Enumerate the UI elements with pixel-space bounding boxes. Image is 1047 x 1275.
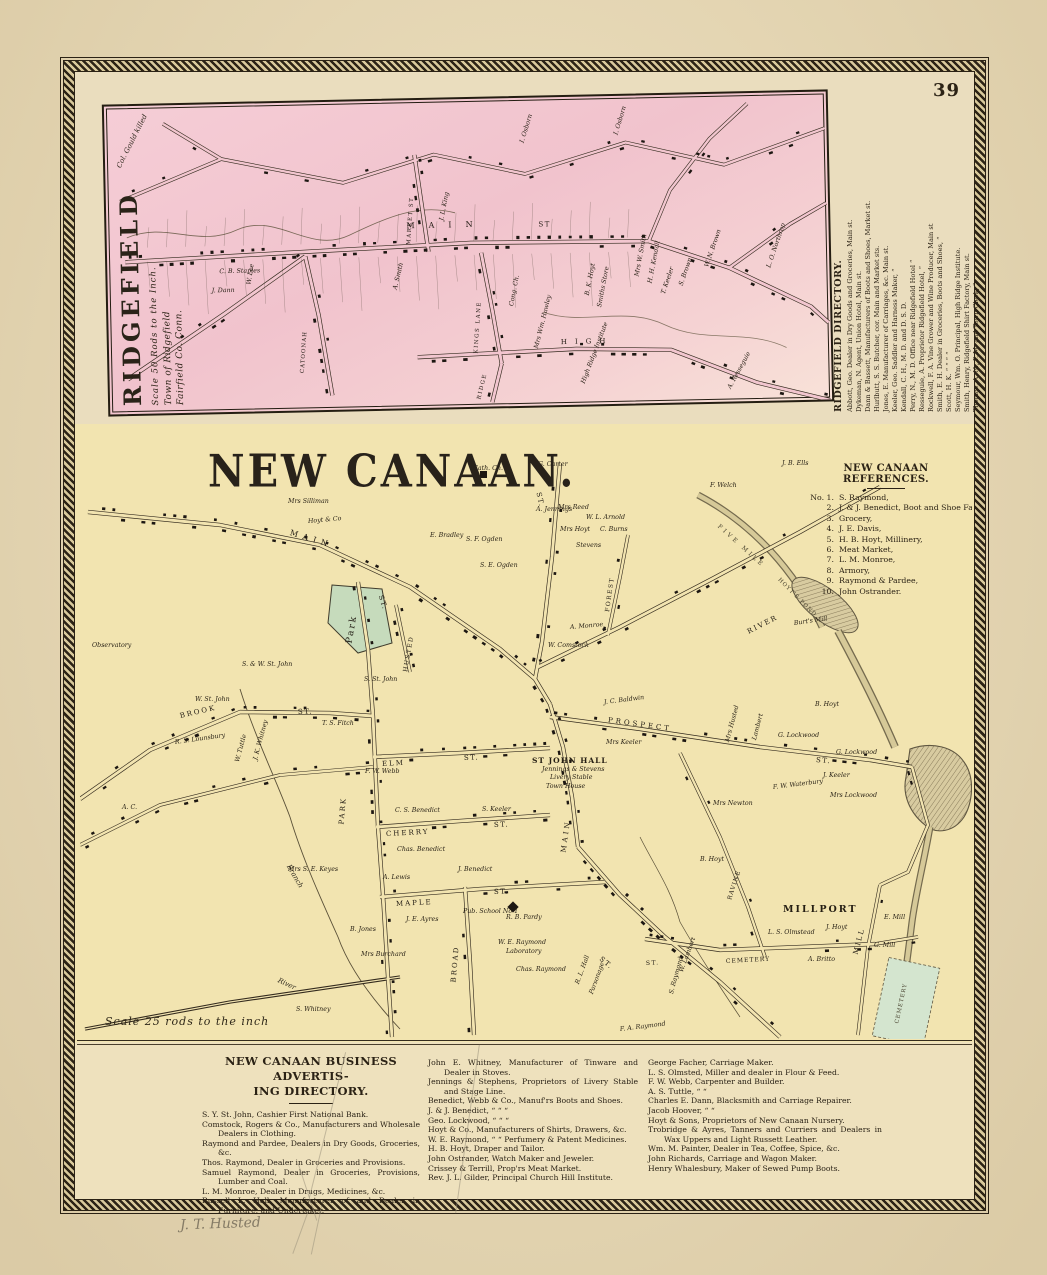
place-label: B. Jones bbox=[350, 927, 376, 933]
place-label: T. Keeler bbox=[661, 267, 676, 296]
reference-number: 6. bbox=[800, 545, 839, 555]
reference-name: H. B. Hoyt, Millinery, bbox=[839, 535, 923, 544]
business-directory-entry: John Ostrander, Watch Maker and Jeweler. bbox=[428, 1154, 638, 1164]
place-label: E. Mill bbox=[884, 915, 905, 921]
ridgefield-directory-entry: Jones, E. Manufacturer of Carriages, &c.… bbox=[882, 128, 891, 412]
place-label: G. Lockwood bbox=[836, 750, 877, 756]
ridgefield-title-block: RIDGEFIELD Scale 50 Rods to the Inch. To… bbox=[111, 162, 228, 406]
ridgefield-directory-entry: Thomas, A. N., P. M. and Town Clerk, “ bbox=[972, 128, 981, 412]
business-directory-entry: H. B. Hoyt, Draper and Tailor. bbox=[428, 1144, 638, 1154]
place-label: L. O. Northrop bbox=[766, 223, 787, 269]
place-label: R. S. Lounsbury bbox=[175, 733, 226, 746]
references-title: NEW CANAAN REFERENCES. bbox=[800, 463, 972, 485]
landmark-label: MILLPORT bbox=[783, 905, 858, 915]
place-label: F. A. Raymond bbox=[620, 1021, 666, 1033]
reference-name: J. & J. Benedict, Boot and Shoe Factory. bbox=[839, 503, 972, 512]
ridgefield-directory-entry: Resseguie, A. Proprietor Ridgefield Hote… bbox=[918, 128, 927, 412]
new-canaan-scale-note: Scale 25 rods to the inch bbox=[105, 1015, 269, 1028]
new-canaan-references: NEW CANAAN REFERENCES. No. 1.S. Raymond,… bbox=[800, 463, 972, 597]
place-label: Cong. Ch. bbox=[509, 275, 521, 307]
reference-name: Grocery, bbox=[839, 514, 872, 523]
business-directory-entry: Jennings & Stephens, Proprietors of Live… bbox=[428, 1077, 638, 1096]
place-label: W. E. Raymond bbox=[498, 940, 546, 946]
place-label: Mrs W. Smith bbox=[634, 234, 648, 277]
atlas-sheet: 39 MAINSTMARKET STCATOONAHKINGS LANEHIGH… bbox=[0, 0, 1047, 1275]
reference-name: J. E. Davis, bbox=[839, 524, 881, 533]
street-label: HUSTED bbox=[403, 635, 415, 672]
place-label: B. Hoyt bbox=[700, 857, 724, 863]
place-label: C. B. Staples bbox=[219, 268, 260, 275]
street-label: ST. bbox=[494, 821, 509, 829]
references-rule bbox=[867, 488, 905, 489]
business-directory-entry: Geo. Lockwood, “ “ “ bbox=[428, 1116, 638, 1126]
business-directory-entry: Trobridge & Ayres, Tanners and Curriers … bbox=[648, 1125, 882, 1144]
place-label: Parsonage bbox=[589, 962, 606, 995]
place-label: C. S. Benedict bbox=[395, 808, 440, 814]
place-label: A. Smith bbox=[393, 262, 406, 290]
business-directory-entry: Samuel Raymond, Dealer in Groceries, Pro… bbox=[202, 1168, 420, 1187]
place-label: A. C. bbox=[122, 805, 137, 811]
place-label: River bbox=[277, 977, 297, 991]
place-label: F. W. Waterbury bbox=[773, 779, 824, 791]
business-directory-entry: L. S. Olmsted, Miller and dealer in Flou… bbox=[648, 1068, 882, 1078]
place-label: W. L. Arnold bbox=[586, 515, 625, 521]
place-label: S. E. Ogden bbox=[480, 563, 518, 569]
place-label: T. S. Fitch bbox=[322, 721, 354, 727]
reference-entry: 2.J. & J. Benedict, Boot and Shoe Factor… bbox=[800, 503, 972, 513]
place-label: S. F. Ogden bbox=[466, 537, 503, 543]
street-label: MAIN bbox=[561, 819, 573, 853]
street-label: RIDGE bbox=[477, 373, 489, 400]
place-label: Hoyt & Co bbox=[308, 516, 342, 525]
business-directory-title-line1: NEW CANAAN BUSINESS ADVERTIS- bbox=[202, 1054, 420, 1084]
place-label: High Ridge Institute bbox=[581, 322, 610, 385]
street-label: RAVINE bbox=[727, 870, 742, 901]
street-label: ST. bbox=[377, 594, 388, 611]
references-list: No. 1.S. Raymond,2.J. & J. Benedict, Boo… bbox=[800, 493, 972, 597]
reference-entry: 7.L. M. Monroe, bbox=[800, 555, 972, 565]
place-label: Laboratory bbox=[506, 949, 541, 955]
place-label: J. Keeler bbox=[823, 773, 850, 779]
place-label: J. L. King bbox=[439, 192, 451, 222]
reference-number: 5. bbox=[800, 535, 839, 545]
place-label: Mrs Husted bbox=[725, 705, 741, 743]
business-directory-entry: S. Y. St. John, Cashier First National B… bbox=[202, 1110, 420, 1120]
street-label: MAPLE bbox=[396, 899, 433, 908]
place-label: G. Mill bbox=[874, 943, 895, 949]
business-directory-entry: A. S. Tuttle, “ “ bbox=[648, 1087, 882, 1097]
business-directory-entry: J. & J. Benedict, “ “ “ bbox=[428, 1106, 638, 1116]
reference-entry: 6.Meat Market, bbox=[800, 545, 972, 555]
place-label: S. & W. St. John bbox=[242, 662, 292, 668]
map-directory-divider-thin bbox=[77, 1044, 972, 1045]
place-label: F. W. Webb bbox=[365, 769, 400, 775]
place-label: W. Comstock bbox=[548, 643, 589, 649]
reference-entry: 3.Grocery, bbox=[800, 514, 972, 524]
business-directory-entry: Crissey & Terrill, Prop'rs Meat Market. bbox=[428, 1164, 638, 1174]
business-directory-entries-1: S. Y. St. John, Cashier First National B… bbox=[202, 1110, 420, 1216]
place-label: J. C. Baldwin bbox=[604, 695, 645, 706]
place-label: G. Lockwood bbox=[778, 733, 819, 739]
business-directory-title-line2: ING DIRECTORY. bbox=[202, 1084, 420, 1099]
street-label: ST. bbox=[298, 708, 313, 716]
place-label: W. Lambert bbox=[679, 937, 697, 974]
place-label: Mrs Keeler bbox=[606, 740, 641, 746]
street-label: FOREST bbox=[605, 577, 616, 613]
reference-name: Meat Market, bbox=[839, 545, 893, 554]
reference-number: 10. bbox=[800, 587, 839, 597]
reference-number: 4. bbox=[800, 524, 839, 534]
reference-name: L. M. Monroe, bbox=[839, 555, 895, 564]
place-label: E. Bradley bbox=[430, 533, 463, 539]
place-label: A. Resseguie bbox=[727, 351, 752, 390]
street-label: ST. bbox=[494, 888, 509, 896]
reference-number: No. 1. bbox=[800, 493, 839, 503]
reference-name: Raymond & Pardee, bbox=[839, 576, 918, 585]
place-label: A. Lewis bbox=[383, 875, 410, 881]
water-label: CEMETERY bbox=[895, 983, 909, 1024]
place-label: B. K. Hoyt bbox=[585, 263, 597, 296]
business-directory-entry: George Facher, Carriage Maker. bbox=[648, 1058, 882, 1068]
business-directory-column-3: George Facher, Carriage Maker.L. S. Olms… bbox=[648, 1058, 882, 1173]
place-label: I. Osborn bbox=[520, 114, 535, 144]
street-label: MILL bbox=[853, 927, 867, 955]
street-label: BROOK bbox=[179, 705, 217, 720]
place-label: W. St. John bbox=[195, 697, 230, 703]
business-directory-entry: Comstock, Rogers & Co., Manufacturers an… bbox=[202, 1120, 420, 1139]
ridgefield-directory: RIDGEFIELD DIRECTORY. Abbott, Geo. Deale… bbox=[832, 128, 986, 412]
place-label: H. H. Kendall bbox=[648, 240, 662, 284]
place-label: R. L. Hall bbox=[575, 955, 591, 986]
street-label: PROSPECT bbox=[608, 717, 673, 733]
place-label: F. Welch bbox=[710, 483, 737, 489]
street-label: ELM bbox=[382, 760, 405, 768]
reference-number: 9. bbox=[800, 576, 839, 586]
place-label: S. Keeler bbox=[482, 807, 511, 813]
street-label: BROAD bbox=[451, 946, 461, 983]
ridgefield-directory-entry: Smith, E. H. Dealer in Groceries, Boots … bbox=[936, 128, 945, 412]
street-label: CEMETERY bbox=[726, 957, 770, 965]
ridgefield-directory-entry: Rockwell, F. A. Vine Grower and Wine Pro… bbox=[927, 128, 936, 412]
business-directory-entry: Jacob Hoover, “ “ bbox=[648, 1106, 882, 1116]
place-label: Mrs Lockwood bbox=[830, 793, 877, 799]
business-directory-entry: Hoyt & Sons, Proprietors of New Canaan N… bbox=[648, 1116, 882, 1126]
reference-entry: 8.Armory, bbox=[800, 566, 972, 576]
reference-entry: 9.Raymond & Pardee, bbox=[800, 576, 972, 586]
pencil-stray-mark bbox=[292, 1211, 308, 1254]
ridgefield-directory-title: RIDGEFIELD DIRECTORY. bbox=[832, 128, 846, 412]
place-label: Smiths Store bbox=[597, 266, 611, 308]
street-label: HIGH bbox=[561, 338, 614, 346]
place-label: J. K. Whitney bbox=[253, 720, 270, 761]
business-directory-entry: John Richards, Carriage and Wagon Maker. bbox=[648, 1154, 882, 1164]
business-directory-entry: Wm. M. Painter, Dealer in Tea, Coffee, S… bbox=[648, 1144, 882, 1154]
reference-entry: 10.John Ostrander. bbox=[800, 587, 972, 597]
ridgefield-directory-entry: Perry, N., M. D. Office near Ridgefield … bbox=[909, 128, 918, 412]
place-label: S. Whitney bbox=[296, 1007, 331, 1013]
landmark-label: ST JOHN HALL bbox=[532, 757, 608, 765]
street-label: CHERRY bbox=[386, 829, 430, 838]
place-label: C. Burns bbox=[600, 527, 628, 533]
business-directory-entries-3: George Facher, Carriage Maker.L. S. Olms… bbox=[648, 1058, 882, 1173]
reference-entry: 4.J. E. Davis, bbox=[800, 524, 972, 534]
business-directory-entry: Raymond and Pardee, Dealers in Dry Goods… bbox=[202, 1139, 420, 1158]
page-content: 39 MAINSTMARKET STCATOONAHKINGS LANEHIGH… bbox=[74, 71, 975, 1200]
reference-name: S. Raymond, bbox=[839, 493, 889, 502]
place-label: Observatory bbox=[92, 643, 131, 649]
reference-name: Armory, bbox=[839, 566, 870, 575]
street-label: ST. bbox=[464, 754, 479, 762]
street-label: ST. bbox=[816, 757, 832, 765]
place-label: W. N. Brown bbox=[704, 229, 723, 268]
place-label: Mrs Hoyt bbox=[560, 527, 590, 533]
place-label: Livery Stable bbox=[550, 775, 592, 781]
ridgefield-directory-entry: Hurlbutt, S. S. Butcher, cor. Main and M… bbox=[873, 128, 882, 412]
business-directory-entry: W. E. Raymond, “ “ Perfumery & Patent Me… bbox=[428, 1135, 638, 1145]
place-label: Lambert bbox=[752, 713, 765, 741]
ridgefield-directory-entry: Seymour, Wm. O. Principal, High Ridge In… bbox=[954, 128, 963, 412]
new-canaan-map-area: NEW CANAAN. NEW CANAAN REFERENCES. No. 1… bbox=[80, 417, 972, 1039]
place-label: L. S. Olmstead bbox=[768, 930, 815, 936]
place-label: J. E. Ayres bbox=[406, 917, 438, 923]
reference-entry: 5.H. B. Hoyt, Millinery, bbox=[800, 535, 972, 545]
business-directory-entries-2: John E. Whitney, Manufacturer of Tinware… bbox=[428, 1058, 638, 1183]
business-directory-entry: Benedict, Webb & Co., Manuf'rs Boots and… bbox=[428, 1096, 638, 1106]
reference-number: 8. bbox=[800, 566, 839, 576]
street-label: ST. bbox=[646, 960, 660, 967]
ridgefield-directory-entry: Kendall, C. H., M. D. and D. S. D. bbox=[900, 128, 909, 412]
place-label: Mrs Silliman bbox=[288, 499, 329, 505]
business-directory-entry: F. W. Webb, Carpenter and Builder. bbox=[648, 1077, 882, 1087]
reference-number: 3. bbox=[800, 514, 839, 524]
place-label: B. Hoyt bbox=[815, 702, 839, 708]
business-directory-rule bbox=[289, 1103, 333, 1104]
ridgefield-directory-entry: Abbott, Geo. Dealer in Dry Goods and Gro… bbox=[846, 128, 855, 412]
street-label: ST bbox=[538, 221, 551, 228]
ridgefield-directory-entry: Dykeman, N. Agent, Union Hotel, Main st. bbox=[855, 128, 864, 412]
place-label: Mrs Newton bbox=[713, 801, 753, 807]
new-canaan-title: NEW CANAAN. bbox=[208, 445, 576, 498]
street-label: CATOONAH bbox=[301, 331, 309, 373]
street-label: PARK bbox=[339, 797, 348, 825]
place-label: Chas. Raymond bbox=[516, 967, 566, 973]
business-directory-entry: Charles E. Dann, Blacksmith and Carriage… bbox=[648, 1096, 882, 1106]
reference-number: 2. bbox=[800, 503, 839, 513]
place-label: W. Tuttle bbox=[235, 734, 248, 763]
place-label: J. Benedict bbox=[458, 867, 492, 873]
place-label: Stevens bbox=[576, 543, 601, 549]
place-label: Col. Gould killed bbox=[116, 113, 149, 169]
place-label: J. Hoyt bbox=[826, 925, 847, 931]
business-directory-entry: Thos. Raymond, Dealer in Groceries and P… bbox=[202, 1158, 420, 1168]
place-label: I. Osborn bbox=[614, 106, 629, 136]
decorative-border: 39 MAINSTMARKET STCATOONAHKINGS LANEHIGH… bbox=[60, 57, 989, 1214]
place-label: Town House bbox=[546, 784, 585, 790]
place-label: Jennings & Stevens bbox=[542, 767, 604, 773]
place-label: Chas. Benedict bbox=[397, 847, 445, 853]
water-label: FIVE MILE bbox=[716, 524, 765, 569]
ridgefield-title: RIDGEFIELD bbox=[111, 164, 150, 407]
place-label: S. Brown bbox=[679, 257, 694, 286]
business-directory-entry: Henry Whalesbury, Maker of Sewed Pump Bo… bbox=[648, 1164, 882, 1174]
pencil-annotation: J. T. Husted bbox=[180, 1215, 261, 1234]
place-label: A. Monroe bbox=[570, 622, 604, 631]
page-number: 39 bbox=[933, 80, 960, 101]
ridgefield-directory-entry: Scott, H. K. “ “ “ “ bbox=[945, 128, 954, 412]
reference-number: 7. bbox=[800, 555, 839, 565]
street-label: KINGS LANE bbox=[474, 301, 483, 354]
street-label: RIVER bbox=[746, 614, 779, 635]
street-label: Park bbox=[346, 614, 360, 644]
reference-entry: No. 1.S. Raymond, bbox=[800, 493, 972, 503]
business-directory-entry: John E. Whitney, Manufacturer of Tinware… bbox=[428, 1058, 638, 1077]
ridgefield-directory-entry: Smith, Henry, Ridgefield Shirt Factory, … bbox=[963, 128, 972, 412]
place-label: Mrs Wm. Hawley bbox=[534, 294, 553, 349]
place-label: S. St. John bbox=[364, 677, 397, 683]
place-label: Mrs Burchard bbox=[361, 952, 406, 958]
ridgefield-directory-entry: Dann & Bassett, Manufacturers of Boots a… bbox=[864, 128, 873, 412]
place-label: Mrs Reed bbox=[558, 505, 589, 511]
place-label: A. Britto bbox=[808, 957, 835, 963]
place-label: R. B. Pardy bbox=[506, 915, 542, 921]
street-label: MAIN bbox=[289, 529, 334, 550]
map-directory-divider bbox=[77, 1040, 972, 1041]
business-directory-entry: Hoyt & Co., Manufacturers of Shirts, Dra… bbox=[428, 1125, 638, 1135]
place-label: Burt's Mill bbox=[794, 616, 828, 627]
business-directory-column-2: John E. Whitney, Manufacturer of Tinware… bbox=[428, 1058, 638, 1183]
ridgefield-map-panel: MAINSTMARKET STCATOONAHKINGS LANEHIGHRID… bbox=[102, 89, 834, 416]
street-label: MAIN bbox=[406, 221, 486, 231]
ridgefield-directory-entry: Keeler, Geo. Saddler and Harness Maker, … bbox=[891, 128, 900, 412]
place-label: Mrs S. E. Keyes bbox=[288, 867, 338, 873]
reference-name: John Ostrander. bbox=[839, 587, 901, 596]
